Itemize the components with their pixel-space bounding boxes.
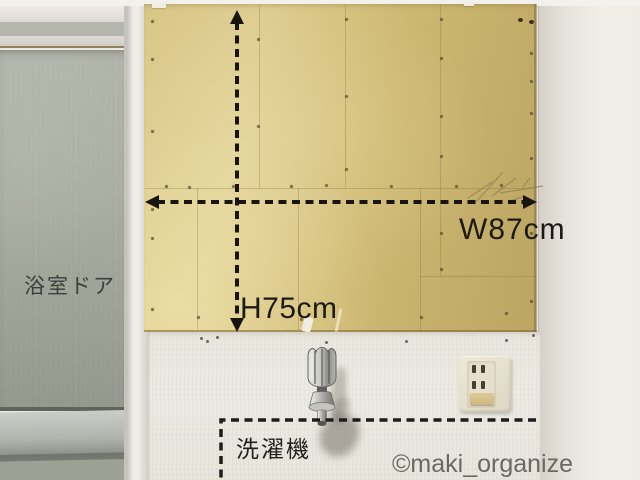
screw [440, 18, 443, 21]
screw [390, 185, 393, 188]
outlet-slot [481, 381, 485, 389]
screw [345, 168, 348, 171]
screw [530, 157, 533, 160]
height-label: H75cm [240, 294, 338, 324]
outlet-face [467, 361, 496, 408]
screw [325, 184, 328, 187]
wall-hole [200, 337, 203, 340]
screw [500, 184, 503, 187]
outlet-earth-cover [470, 393, 494, 405]
screw [151, 58, 154, 61]
screw [345, 95, 348, 98]
washer-label: 洗濯機 [236, 438, 311, 461]
screw [151, 208, 154, 211]
screw [530, 80, 533, 83]
screw [151, 237, 154, 240]
wall-hole [206, 340, 209, 343]
screw [440, 115, 443, 118]
photo-laundry-corner: 浴室ドア [0, 0, 640, 480]
screw [440, 232, 443, 235]
screw [257, 38, 260, 41]
wall-hole [532, 334, 535, 337]
outlet-slot [472, 365, 476, 373]
screw [505, 312, 508, 315]
screw [290, 185, 293, 188]
screw [188, 186, 191, 189]
screw [440, 155, 443, 158]
screw [232, 185, 235, 188]
outlet-slot [472, 381, 476, 389]
screw [440, 57, 443, 60]
board-hole [518, 18, 523, 22]
wall-hole [216, 336, 219, 339]
screw [151, 130, 154, 133]
screw [530, 52, 533, 55]
screw [257, 125, 260, 128]
screw [165, 185, 168, 188]
screw [151, 20, 154, 23]
screw [345, 18, 348, 21]
wall-hole [325, 341, 328, 344]
screw [420, 316, 423, 319]
width-label: W87cm [459, 215, 566, 245]
board-hole [529, 20, 534, 24]
outlet-slot [481, 365, 485, 373]
screw [530, 112, 533, 115]
wall-hole [405, 340, 408, 343]
power-outlet [459, 356, 511, 412]
wall-hole [505, 339, 508, 342]
screw [455, 185, 458, 188]
screw [530, 300, 533, 303]
screw [440, 268, 443, 271]
screw [151, 308, 154, 311]
watermark: ©maki_organize [392, 452, 573, 477]
screw [197, 316, 200, 319]
